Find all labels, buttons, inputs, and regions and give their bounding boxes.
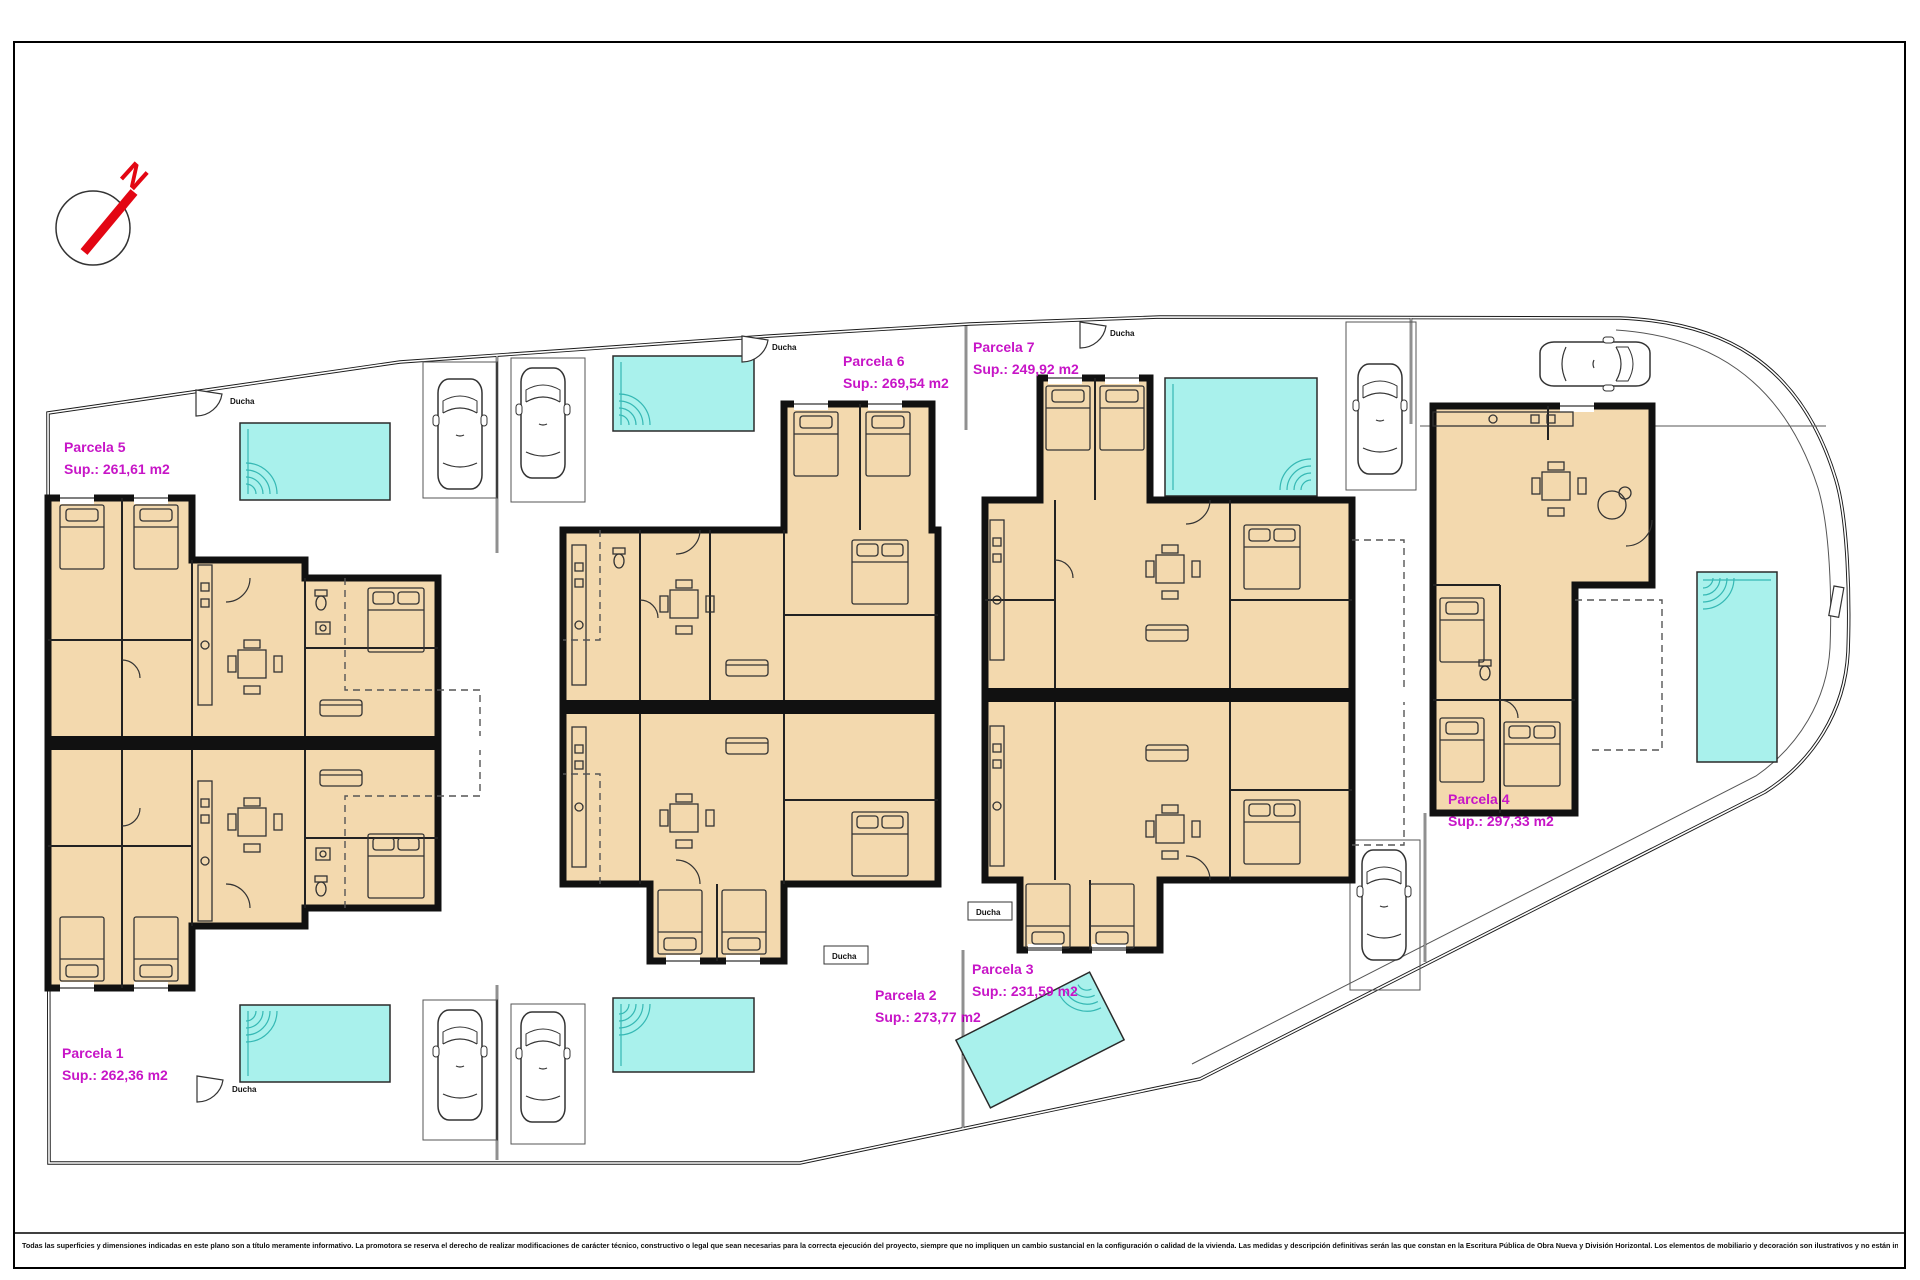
car-parcela-7 (1353, 364, 1407, 474)
pool-parcela-4 (1697, 572, 1777, 762)
north-circle (56, 191, 130, 265)
ducha-label-p7: Ducha (1110, 329, 1135, 338)
car-parcela-5 (433, 379, 487, 489)
ducha-label-p3: Ducha (976, 908, 1001, 917)
car-parcela-1 (433, 1010, 487, 1120)
svg-text:Sup.: 273,77 m2: Sup.: 273,77 m2 (875, 1009, 981, 1025)
north-letter: N (114, 155, 155, 197)
svg-text:Sup.: 249,92 m2: Sup.: 249,92 m2 (973, 361, 1079, 377)
site-plan-drawing: Ducha Ducha Ducha Ducha Ducha Ducha Parc… (0, 0, 1920, 1280)
svg-text:Parcela 5: Parcela 5 (64, 439, 126, 455)
car-parcela-4 (1540, 337, 1650, 391)
svg-text:Parcela 4: Parcela 4 (1448, 791, 1510, 807)
pool-parcela-6 (613, 356, 754, 431)
pool-parcela-5 (240, 423, 390, 500)
svg-text:Sup.: 231,59 m2: Sup.: 231,59 m2 (972, 983, 1078, 999)
car-parcela-2 (516, 1012, 570, 1122)
ducha-label-p5: Ducha (230, 397, 255, 406)
car-parcela-3 (1357, 850, 1411, 960)
ducha-label-p2: Ducha (832, 952, 857, 961)
pool-parcela-7 (1165, 378, 1317, 496)
svg-text:Parcela 1: Parcela 1 (62, 1045, 124, 1061)
ducha-label-p1: Ducha (232, 1085, 257, 1094)
north-indicator: N (56, 155, 155, 265)
pool-parcela-1 (240, 1005, 390, 1082)
svg-text:Sup.: 262,36 m2: Sup.: 262,36 m2 (62, 1067, 168, 1083)
pool-parcela-2 (613, 998, 754, 1072)
svg-text:Parcela 6: Parcela 6 (843, 353, 905, 369)
ducha-label-p6: Ducha (772, 343, 797, 352)
site-plan-page: Ducha Ducha Ducha Ducha Ducha Ducha Parc… (0, 0, 1920, 1280)
car-parcela-6 (516, 368, 570, 478)
disclaimer-text: Todas las superficies y dimensiones indi… (22, 1241, 1898, 1263)
svg-text:Sup.: 261,61 m2: Sup.: 261,61 m2 (64, 461, 170, 477)
svg-text:Sup.: 297,33 m2: Sup.: 297,33 m2 (1448, 813, 1554, 829)
svg-text:Parcela 3: Parcela 3 (972, 961, 1034, 977)
svg-text:Parcela 7: Parcela 7 (973, 339, 1035, 355)
svg-text:Sup.: 269,54 m2: Sup.: 269,54 m2 (843, 375, 949, 391)
svg-text:Parcela 2: Parcela 2 (875, 987, 937, 1003)
